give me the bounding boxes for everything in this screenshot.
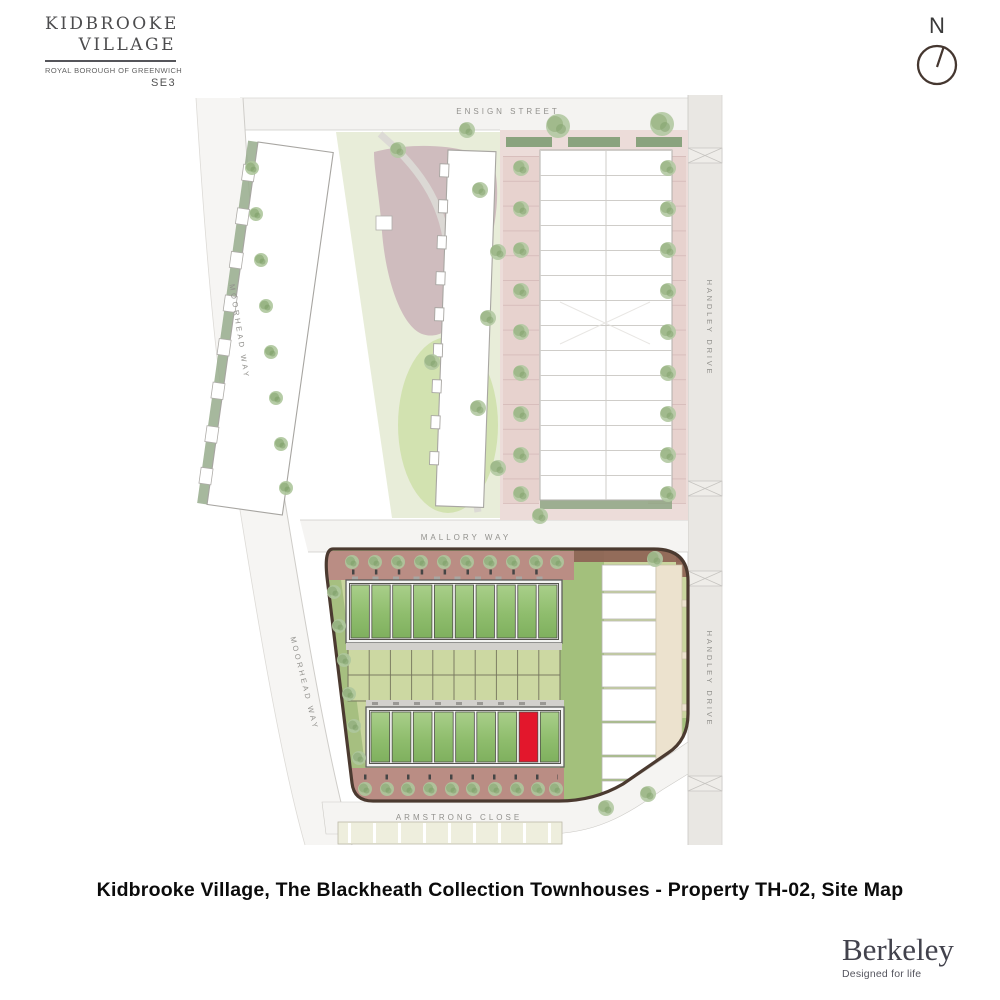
townhouse-roof — [456, 712, 475, 762]
townhouse-roof — [392, 712, 411, 762]
townhouse-roof — [435, 712, 454, 762]
compass-north-label: N — [910, 14, 964, 38]
townhouse-roof — [413, 712, 432, 762]
lower-townhouse-row — [364, 700, 564, 777]
garden-plots — [348, 649, 560, 701]
townhouse-roof — [476, 585, 494, 638]
townhouse-roof — [455, 585, 473, 638]
compass-icon — [913, 38, 961, 88]
townhouse-roof — [518, 585, 536, 638]
street-label-handley-lower: HANDLEY DRIVE — [705, 631, 714, 728]
berkeley-logo: Berkeley Designed for life — [842, 934, 954, 980]
highlight-unit-th02 — [519, 712, 538, 762]
street-label-handley-upper: HANDLEY DRIVE — [705, 280, 714, 377]
brand-subtitle: ROYAL BOROUGH OF GREENWICH — [45, 66, 176, 75]
street-label-mallory: MALLORY WAY — [421, 533, 512, 542]
townhouse-roof — [371, 712, 390, 762]
blackheath-block — [318, 545, 692, 805]
page: ENSIGN STREET MALLORY WAY ARMSTRONG CLOS… — [0, 0, 1000, 1000]
townhouse-roof — [540, 712, 559, 762]
berkeley-tagline: Designed for life — [842, 968, 954, 980]
brand-postcode: SE3 — [45, 77, 176, 89]
townhouse-roof — [477, 712, 496, 762]
brand-name-line1: KIDBROOKE — [45, 14, 176, 34]
townhouse-roof — [539, 585, 557, 638]
berkeley-wordmark: Berkeley — [842, 934, 954, 967]
site-map: ENSIGN STREET MALLORY WAY ARMSTRONG CLOS… — [0, 0, 1000, 1000]
townhouse-roof — [497, 585, 515, 638]
upper-townhouse-row — [346, 572, 562, 650]
brand-logo: KIDBROOKE VILLAGE ROYAL BOROUGH OF GREEN… — [45, 14, 176, 89]
brand-name-line2: VILLAGE — [45, 35, 176, 55]
lower-townhouse-roofs — [371, 712, 559, 762]
brand-divider — [45, 60, 176, 62]
townhouse-roof — [351, 585, 369, 638]
parking-court — [500, 130, 688, 520]
townhouse-roof — [414, 585, 432, 638]
caption: Kidbrooke Village, The Blackheath Collec… — [0, 879, 1000, 902]
townhouse-roof — [372, 585, 390, 638]
road-handley-drive — [688, 95, 722, 845]
street-label-ensign: ENSIGN STREET — [456, 107, 559, 116]
street-parking-row — [338, 822, 562, 844]
compass: N — [910, 14, 964, 93]
townhouse-roof — [498, 712, 517, 762]
townhouse-roof — [393, 585, 411, 638]
street-label-armstrong: ARMSTRONG CLOSE — [396, 813, 522, 822]
pavilion — [376, 216, 392, 230]
townhouse-roof — [434, 585, 452, 638]
upper-block — [196, 130, 688, 520]
